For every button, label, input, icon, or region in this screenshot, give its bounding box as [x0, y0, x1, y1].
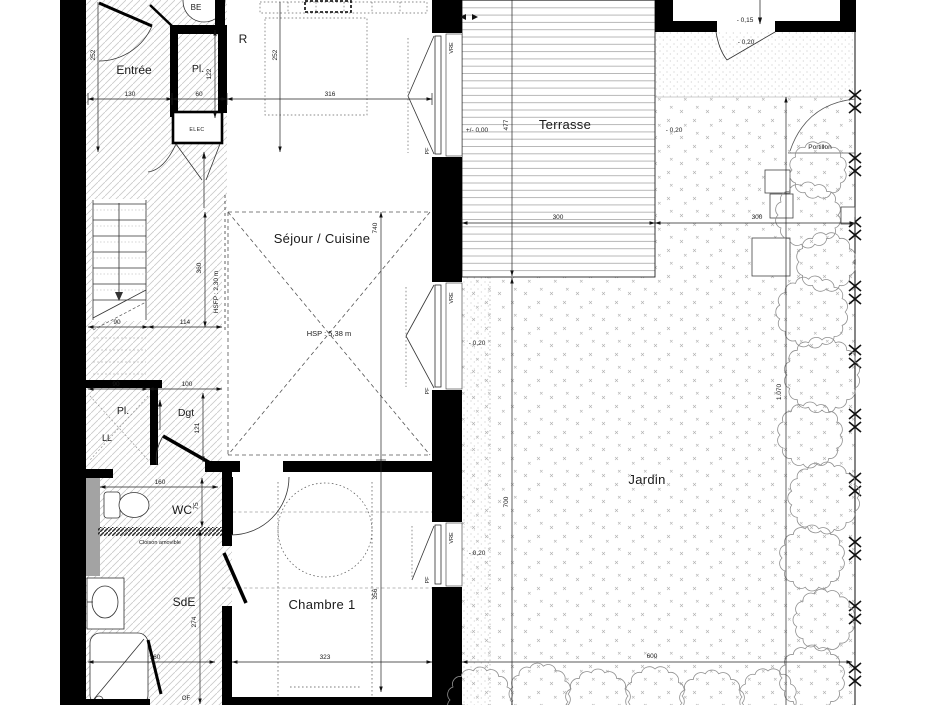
- dim-323: 323: [320, 654, 331, 661]
- dim-60: 60: [195, 91, 203, 98]
- label-be: BE: [191, 3, 202, 12]
- dim-300-b: 300: [752, 214, 763, 221]
- window-label-pf-2: PF: [425, 387, 431, 395]
- label-hsp: HSP : 5,38 m: [307, 329, 351, 338]
- wc-cistern: [104, 492, 120, 518]
- label-hsfp: HSFP : 2,30 m: [213, 271, 220, 314]
- bed: [278, 482, 372, 700]
- dim-360: 360: [196, 262, 203, 273]
- level-jardin-minus20-b: - 0,20: [469, 550, 486, 557]
- dim-90-b: 90: [112, 381, 120, 388]
- dim-130: 130: [125, 91, 136, 98]
- dim-114: 114: [180, 319, 191, 326]
- window-label-vre-1: VRE: [449, 42, 455, 54]
- dim-356: 356: [372, 588, 379, 599]
- level-zero: +/- 0,00: [466, 127, 489, 134]
- fence-box: [841, 207, 855, 224]
- chambre-zone: [222, 482, 432, 700]
- window-label-pf-3: PF: [425, 576, 431, 584]
- dim-100: 100: [182, 381, 193, 388]
- room-label-sde: SdE: [173, 595, 196, 609]
- level-terrasse-minus20: - 0,20: [666, 127, 683, 134]
- window-label-vre-2: VRE: [449, 292, 455, 304]
- dim-252-a: 252: [90, 49, 97, 60]
- dim-122: 122: [206, 68, 213, 79]
- dim-252-b: 252: [272, 49, 279, 60]
- level-shed-minus15: - 0,15: [737, 17, 754, 24]
- site-grounds: [86, 0, 855, 705]
- window-chambre: [412, 522, 462, 587]
- room-label-dgt: Dgt: [178, 407, 194, 419]
- dim-160-wc: 160: [155, 479, 166, 486]
- room-label-jardin: Jardin: [628, 472, 665, 487]
- room-label-entree: Entrée: [116, 63, 152, 77]
- room-label-pl-haut: Pl.: [192, 63, 204, 75]
- room-label-r: R: [239, 32, 248, 46]
- label-cloison: Cloison amovible: [139, 540, 181, 546]
- dim-600: 600: [647, 653, 658, 660]
- gravel-shed-area: [655, 32, 855, 97]
- label-of: OF: [182, 696, 191, 702]
- room-label-sejour: Séjour / Cuisine: [274, 231, 371, 246]
- label-portillon: Portillon: [808, 144, 832, 151]
- party-wall: [60, 0, 86, 705]
- removable-partition: [98, 527, 222, 536]
- terrasse-decking: [462, 0, 655, 277]
- dim-477: 477: [503, 119, 510, 130]
- dim-300-a: 300: [553, 214, 564, 221]
- level-shed-minus20: - 0,20: [738, 39, 755, 46]
- wc-bowl: [119, 493, 149, 518]
- dim-121: 121: [194, 422, 201, 433]
- dim-1070: 1.070: [776, 383, 783, 400]
- room-label-wc: WC: [172, 503, 192, 517]
- dim-274: 274: [191, 616, 198, 627]
- room-label-terrasse: Terrasse: [539, 117, 591, 132]
- garden-box: [770, 194, 793, 218]
- dim-740: 740: [372, 222, 379, 233]
- room-label-ll: LL: [102, 433, 112, 443]
- dim-160-sde: 160: [150, 654, 161, 661]
- sejour-zone: [228, 1, 430, 455]
- dim-700: 700: [503, 496, 510, 507]
- kitchen-counter: [260, 2, 427, 13]
- dim-316: 316: [325, 91, 336, 98]
- chambre-door-swing: [231, 477, 289, 535]
- room-label-pl: Pl.: [117, 405, 129, 417]
- label-elec: ELEC: [189, 127, 204, 133]
- dim-75: 75: [193, 502, 200, 510]
- dim-90-stair: 90: [113, 319, 121, 326]
- existing-duct: [86, 478, 100, 576]
- floor-plan: 130 60 316 252 122 252 740 356 90 114 36…: [0, 0, 940, 705]
- window-label-pf-1: PF: [425, 147, 431, 155]
- room-label-chambre: Chambre 1: [288, 597, 355, 612]
- garden-box-large: [752, 238, 790, 276]
- window-label-vre-3: VRE: [449, 532, 455, 544]
- level-jardin-minus20-a: - 0,20: [469, 340, 486, 347]
